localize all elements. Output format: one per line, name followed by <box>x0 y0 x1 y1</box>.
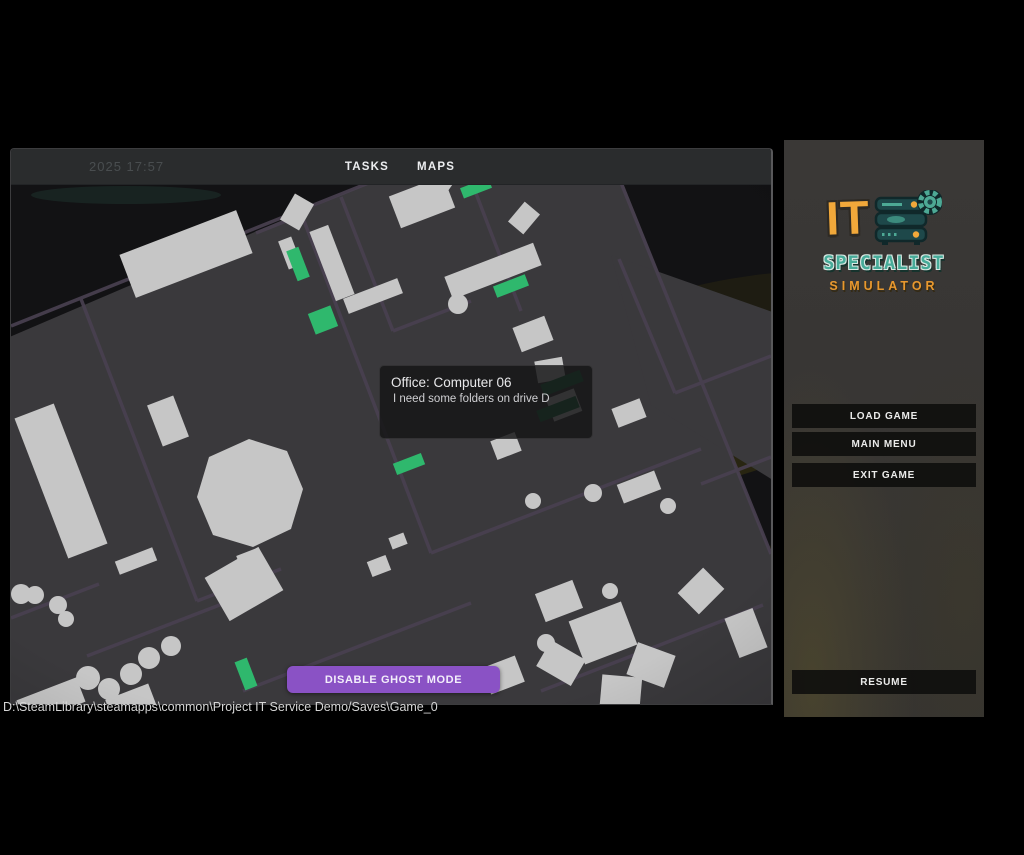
logo-it-text: IT <box>825 196 870 240</box>
tooltip-description: I need some folders on drive D <box>391 393 581 405</box>
logo-simulator-text: SIMULATOR <box>784 279 984 293</box>
map-window: 2025 17:57 TASKS MAPS <box>10 148 773 705</box>
task-tooltip: Office: Computer 06 I need some folders … <box>379 365 593 439</box>
server-rack-gear-icon <box>874 190 942 246</box>
gear-icon <box>921 193 940 212</box>
load-game-button[interactable]: LOAD GAME <box>792 404 976 428</box>
save-path-text: D:\SteamLibrary\steamapps\common\Project… <box>3 700 438 714</box>
resume-button[interactable]: RESUME <box>792 670 976 694</box>
logo-specialist-text: SPECIALIST <box>784 253 984 274</box>
tab-tasks[interactable]: TASKS <box>345 161 389 173</box>
disable-ghost-mode-button[interactable]: DISABLE GHOST MODE <box>287 666 500 693</box>
tab-maps[interactable]: MAPS <box>417 161 455 173</box>
tooltip-title: Office: Computer 06 <box>391 375 581 390</box>
window-header: 2025 17:57 TASKS MAPS <box>11 149 771 185</box>
exit-game-button[interactable]: EXIT GAME <box>792 463 976 487</box>
menu-panel: IT <box>784 140 984 717</box>
floor-plan-map[interactable] <box>11 185 773 705</box>
tab-bar: TASKS MAPS <box>20 149 773 185</box>
main-menu-button[interactable]: MAIN MENU <box>792 432 976 456</box>
game-logo: IT <box>784 190 984 293</box>
